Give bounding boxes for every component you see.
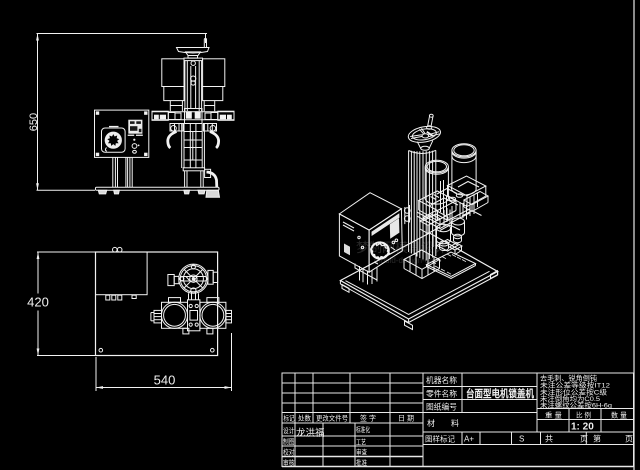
svg-text:材 料: 材 料	[427, 418, 459, 428]
svg-text:页: 页	[625, 435, 633, 444]
svg-text:更改文件号: 更改文件号	[316, 414, 348, 423]
svg-text:第: 第	[593, 434, 601, 444]
svg-text:图样标记: 图样标记	[425, 434, 455, 444]
svg-text:设计: 设计	[283, 426, 295, 435]
svg-text:处数: 处数	[298, 414, 311, 423]
svg-text:420: 420	[27, 295, 49, 310]
svg-text:日 期: 日 期	[398, 415, 414, 423]
svg-text:工艺: 工艺	[356, 439, 366, 447]
svg-text:零件名称: 零件名称	[426, 389, 457, 399]
svg-text:比 例: 比 例	[576, 411, 591, 420]
svg-text:批准: 批准	[356, 458, 367, 467]
svg-text:机器名称: 机器名称	[426, 375, 457, 385]
svg-text:审核: 审核	[283, 458, 295, 467]
svg-text:mould-design-cn: mould-design-cn	[374, 256, 433, 265]
svg-text:共: 共	[545, 435, 553, 444]
svg-text:制图: 制图	[283, 437, 295, 446]
svg-text:标记: 标记	[284, 414, 295, 423]
svg-text:S: S	[519, 435, 524, 444]
svg-text:650: 650	[28, 113, 40, 131]
svg-text:审查: 审查	[356, 448, 367, 457]
svg-text:A+: A+	[464, 435, 474, 444]
svg-text:标准化: 标准化	[356, 425, 370, 434]
svg-text:龙洪福: 龙洪福	[296, 427, 325, 439]
svg-text:台面型电机锁盖机: 台面型电机锁盖机	[466, 387, 534, 400]
svg-text:540: 540	[154, 373, 176, 388]
svg-text:校对: 校对	[283, 448, 295, 457]
svg-text:去毛刺、锐角倒钝: 去毛刺、锐角倒钝	[540, 374, 597, 383]
svg-text:图纸编号: 图纸编号	[426, 402, 457, 412]
svg-text:未注螺纹公差按6H-6g: 未注螺纹公差按6H-6g	[540, 401, 612, 410]
svg-text:重 量: 重 量	[545, 412, 562, 420]
svg-text:梦制网模具设计: 梦制网模具设计	[356, 240, 447, 255]
svg-text:1: 20: 1: 20	[571, 422, 594, 433]
svg-text:未注公差等级按IT12: 未注公差等级按IT12	[540, 381, 610, 390]
svg-text:签 字: 签 字	[360, 414, 376, 423]
svg-text:页: 页	[580, 435, 588, 444]
svg-text:数 量: 数 量	[611, 411, 627, 420]
